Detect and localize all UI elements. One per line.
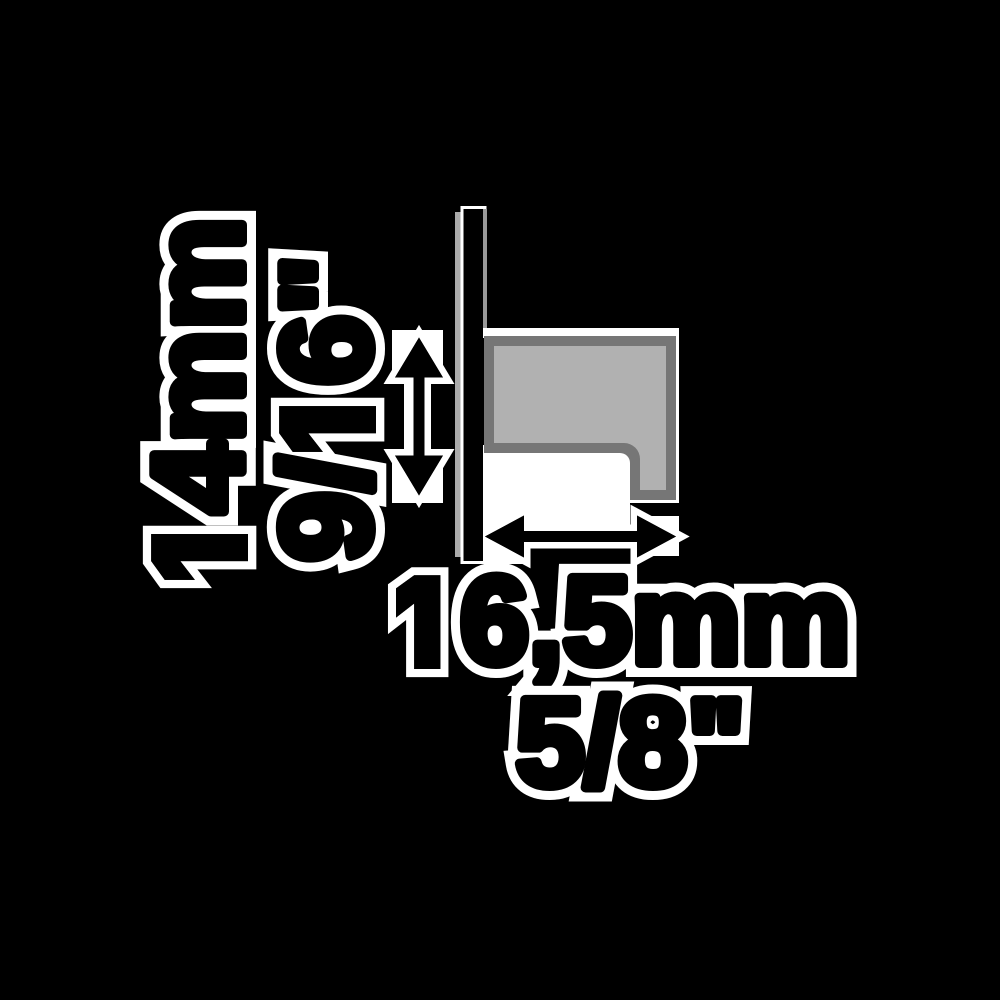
svg-text:4mm: 4mm [127,217,269,513]
svg-text:6,5mm: 6,5mm [460,553,850,690]
svg-text:9/: 9/ [255,456,397,562]
svg-text:5/8": 5/8" [516,675,745,812]
svg-text:6": 6" [255,255,397,386]
